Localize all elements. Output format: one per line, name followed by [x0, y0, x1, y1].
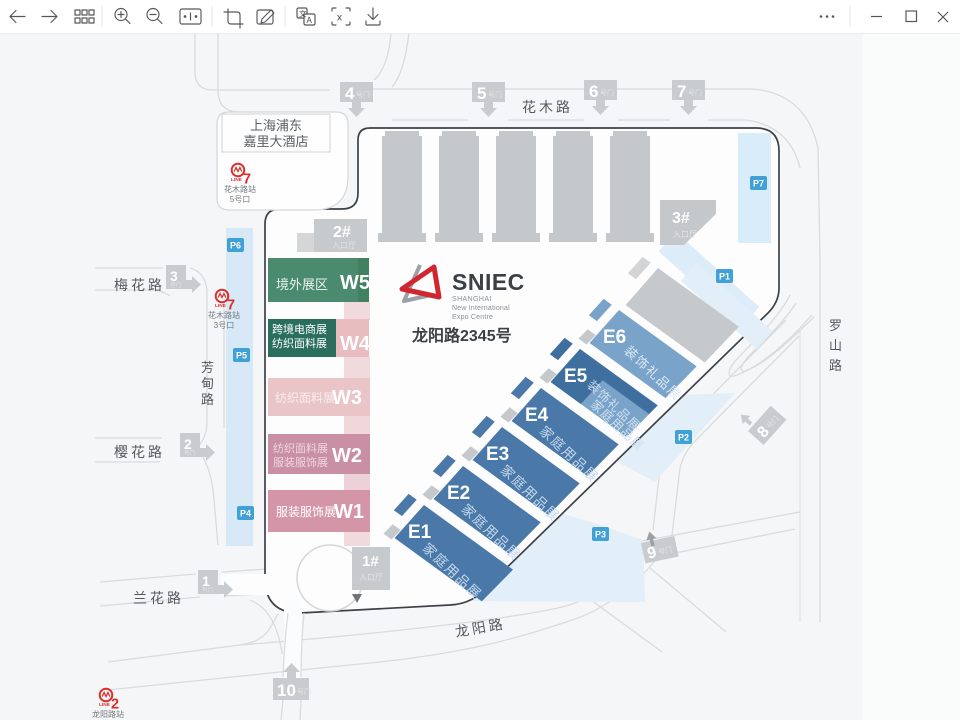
svg-text:P1: P1 — [719, 272, 730, 282]
svg-text:7: 7 — [677, 82, 686, 101]
svg-text:P6: P6 — [230, 241, 241, 251]
svg-text:罗: 罗 — [829, 318, 842, 333]
svg-text:SHANGHAI: SHANGHAI — [452, 296, 492, 303]
svg-text:W4: W4 — [340, 333, 371, 355]
svg-text:E3: E3 — [486, 444, 509, 465]
svg-text:A: A — [307, 16, 313, 25]
svg-text:E1: E1 — [408, 522, 432, 543]
svg-text:纺织面料展: 纺织面料展 — [272, 336, 327, 350]
svg-text:服装服饰展: 服装服饰展 — [273, 455, 328, 469]
svg-text:W5: W5 — [340, 272, 370, 294]
svg-text:P3: P3 — [595, 530, 606, 540]
svg-text:山: 山 — [829, 338, 842, 353]
svg-text:境外展区: 境外展区 — [276, 277, 328, 292]
svg-text:入口厅: 入口厅 — [332, 241, 356, 250]
svg-text:号门: 号门 — [488, 90, 502, 99]
svg-text:3: 3 — [170, 268, 178, 284]
svg-text:龙阳路2345号: 龙阳路2345号 — [411, 326, 512, 345]
svg-text:LINE: LINE — [231, 177, 243, 183]
svg-text:New International: New International — [452, 305, 510, 312]
svg-text:嘉里大酒店: 嘉里大酒店 — [243, 134, 308, 149]
svg-text:x: x — [337, 13, 342, 24]
svg-text:号门: 号门 — [202, 586, 213, 594]
svg-text:号门: 号门 — [356, 90, 370, 99]
svg-text:W3: W3 — [332, 387, 362, 409]
svg-text:P2: P2 — [678, 433, 689, 443]
svg-text:LINE: LINE — [215, 303, 227, 309]
svg-text:号门: 号门 — [688, 88, 702, 97]
svg-text:花木路: 花木路 — [522, 99, 573, 115]
svg-text:3#: 3# — [672, 210, 690, 227]
svg-text:梅花路: 梅花路 — [114, 277, 165, 293]
svg-text:跨境电商展: 跨境电商展 — [272, 322, 327, 336]
svg-text:甸: 甸 — [201, 376, 214, 391]
svg-text:SNIEC: SNIEC — [452, 269, 525, 295]
svg-text:P7: P7 — [753, 179, 764, 189]
svg-text:P5: P5 — [236, 351, 247, 361]
svg-text:入口厅: 入口厅 — [673, 230, 697, 239]
svg-text:号门: 号门 — [297, 687, 311, 696]
svg-text:W2: W2 — [332, 445, 362, 467]
svg-text:6: 6 — [589, 82, 598, 101]
svg-text:上海浦东: 上海浦东 — [250, 118, 302, 133]
svg-text:E5: E5 — [564, 366, 588, 387]
svg-text:樱花路: 樱花路 — [114, 444, 165, 460]
svg-text:号门: 号门 — [600, 88, 614, 97]
svg-text:4: 4 — [345, 84, 355, 103]
svg-text:1#: 1# — [362, 553, 379, 570]
svg-text:花木路站: 花木路站 — [208, 310, 240, 320]
svg-text:3号口: 3号口 — [214, 321, 234, 330]
svg-text:E6: E6 — [603, 327, 626, 348]
svg-text:纺织面料展: 纺织面料展 — [273, 441, 328, 455]
svg-text:E2: E2 — [447, 483, 470, 504]
svg-text:E4: E4 — [525, 405, 549, 426]
svg-text:号门: 号门 — [170, 281, 181, 289]
svg-text:路: 路 — [201, 392, 214, 407]
svg-text:W1: W1 — [334, 501, 364, 523]
svg-text:花木路站: 花木路站 — [224, 184, 256, 194]
svg-text:芳: 芳 — [201, 360, 214, 375]
svg-text:5号口: 5号口 — [230, 195, 250, 204]
svg-text:号门: 号门 — [184, 449, 195, 457]
svg-text:Expo Centre: Expo Centre — [452, 314, 493, 321]
svg-text:1: 1 — [202, 573, 210, 589]
svg-text:10: 10 — [277, 681, 296, 700]
svg-text:5: 5 — [477, 84, 486, 103]
svg-text:龙阳路站: 龙阳路站 — [92, 709, 124, 719]
svg-text:入口厅: 入口厅 — [359, 573, 383, 582]
svg-text:路: 路 — [829, 358, 842, 373]
svg-text:服装服饰展: 服装服饰展 — [276, 505, 336, 519]
svg-text:LINE: LINE — [99, 702, 111, 708]
svg-text:纺织面料展: 纺织面料展 — [275, 391, 335, 405]
svg-text:P4: P4 — [240, 509, 251, 519]
svg-text:2: 2 — [184, 436, 192, 452]
svg-text:兰花路: 兰花路 — [133, 590, 184, 606]
svg-text:2#: 2# — [333, 224, 351, 241]
